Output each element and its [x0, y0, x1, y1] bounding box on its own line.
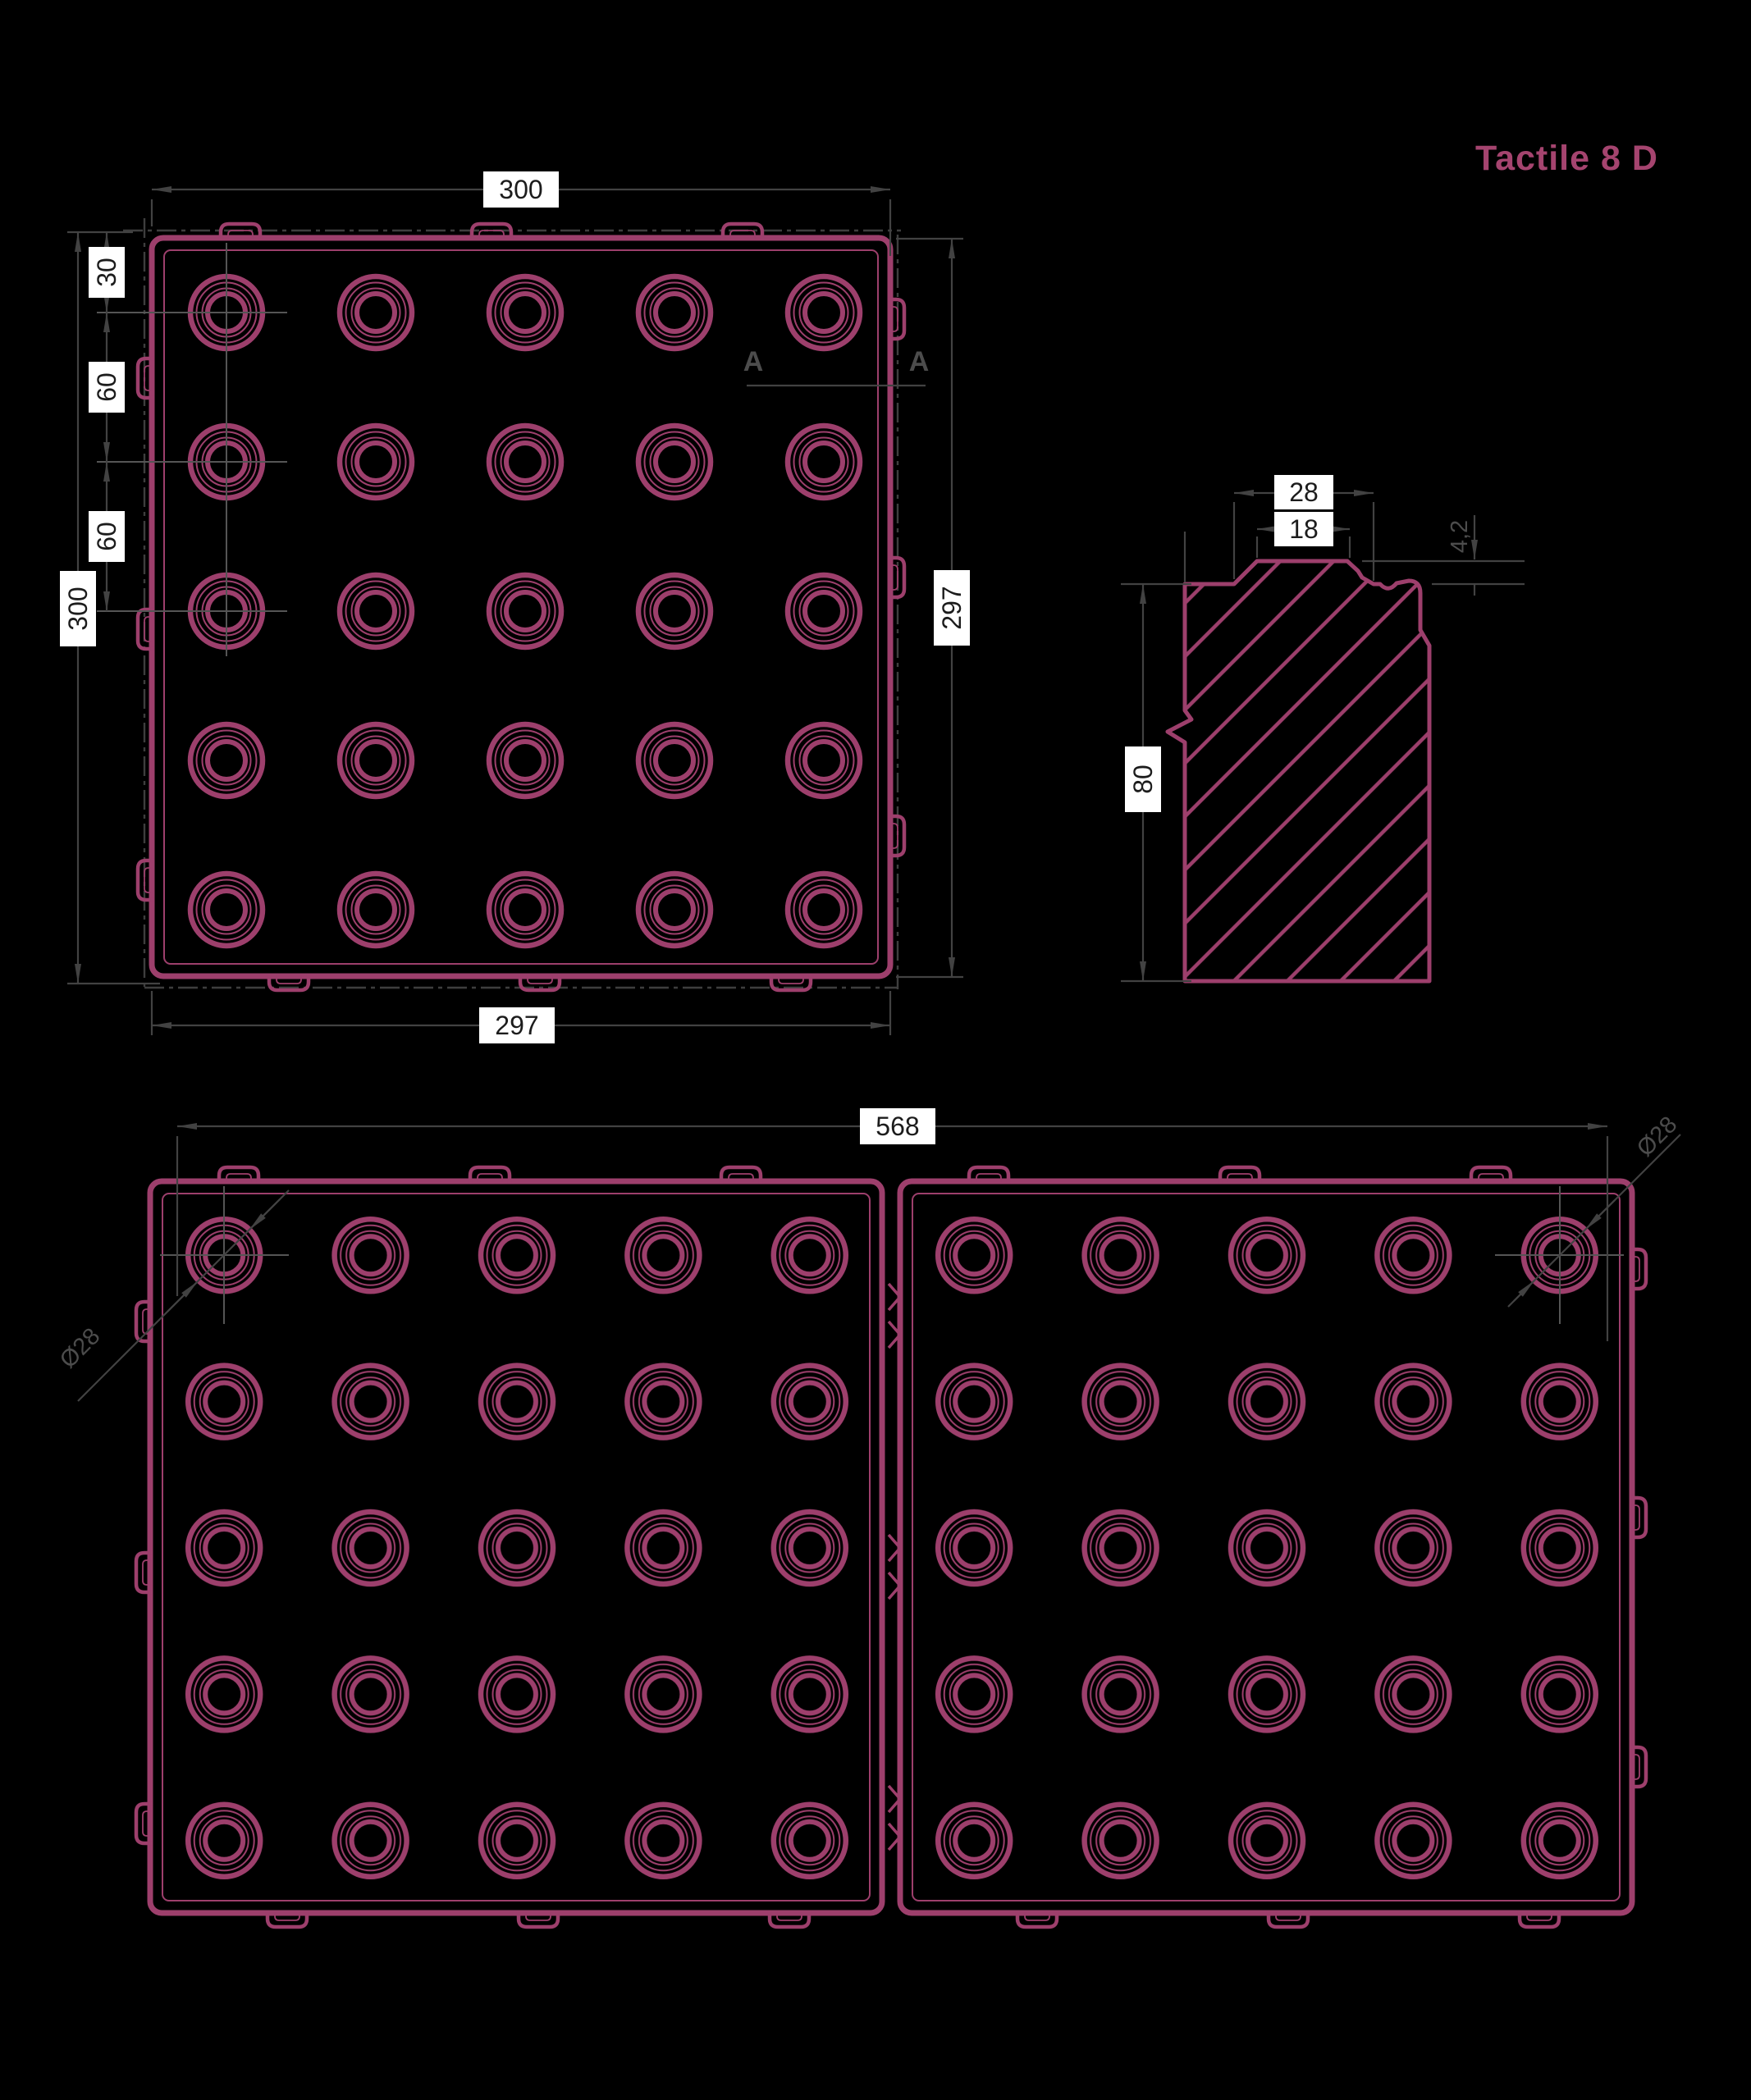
pair-view: 568 Ø28 Ø28: [55, 1108, 1682, 1927]
dim-label-568: 568: [875, 1112, 919, 1141]
dim-label-28: 28: [1289, 477, 1319, 507]
dim-label-297-right: 297: [937, 586, 967, 629]
plan-tile-body: [152, 238, 890, 976]
page-title: Tactile 8 D: [1475, 139, 1658, 178]
dim-label-300-top: 300: [499, 175, 542, 204]
dim-label-80: 80: [1128, 765, 1158, 794]
section-label-A-right: A: [909, 346, 930, 377]
pair-right-dome-grid: [903, 1184, 1630, 1912]
dim-label-18: 18: [1289, 514, 1319, 544]
pair-left-tile: [136, 1167, 882, 1927]
plan-view: 300 300 30 60 60: [60, 171, 970, 1043]
dim-label-60-a: 60: [92, 372, 121, 402]
section-label-A-left: A: [743, 346, 764, 377]
section-profile: [1168, 561, 1429, 981]
dim-dome-height: 4,2: [1447, 515, 1474, 559]
tactile-8d-drawing-page: Tactile 8 D: [0, 0, 1751, 2100]
plan-dome-grid: [153, 240, 889, 975]
dim-label-297-bottom: 297: [495, 1011, 538, 1040]
pair-left-dome-grid: [153, 1184, 881, 1912]
drawing-canvas: Tactile 8 D: [0, 0, 1751, 2100]
dim-label-300-left: 300: [63, 587, 93, 630]
dim-label-60-b: 60: [92, 522, 121, 551]
dim-label-30: 30: [92, 258, 121, 287]
dim-label-4-2: 4,2: [1447, 520, 1473, 553]
